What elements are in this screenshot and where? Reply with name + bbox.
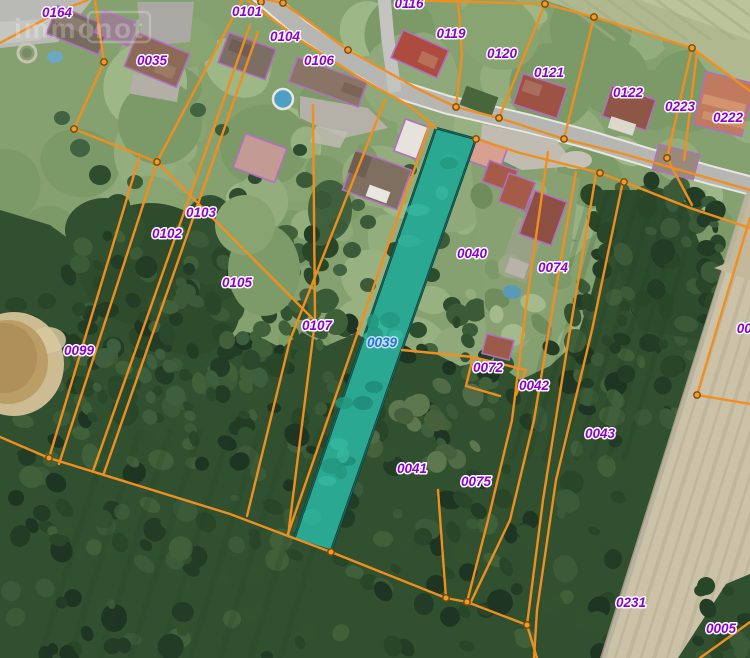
svg-text:0005: 0005 — [706, 621, 737, 636]
svg-text:0116: 0116 — [394, 0, 424, 11]
svg-text:0104: 0104 — [270, 29, 301, 44]
svg-text:0041: 0041 — [397, 461, 427, 476]
svg-text:0119: 0119 — [436, 26, 466, 41]
svg-text:0102: 0102 — [152, 226, 183, 241]
svg-text:004: 004 — [737, 321, 750, 336]
svg-text:0042: 0042 — [519, 378, 550, 393]
svg-text:0099: 0099 — [64, 343, 95, 358]
svg-text:0074: 0074 — [538, 260, 569, 275]
svg-text:0120: 0120 — [487, 46, 518, 61]
svg-text:0075: 0075 — [461, 474, 492, 489]
svg-text:0035: 0035 — [137, 53, 168, 68]
svg-text:0043: 0043 — [585, 426, 616, 441]
svg-text:0101: 0101 — [232, 4, 262, 19]
svg-text:0107: 0107 — [302, 318, 334, 333]
svg-text:0105: 0105 — [222, 275, 253, 290]
svg-text:0222: 0222 — [713, 110, 744, 125]
svg-text:0223: 0223 — [665, 99, 696, 114]
svg-text:0121: 0121 — [534, 65, 564, 80]
svg-text:not: not — [95, 13, 145, 44]
svg-text:0231: 0231 — [616, 595, 646, 610]
svg-text:0122: 0122 — [613, 85, 644, 100]
svg-text:immo: immo — [14, 13, 97, 44]
svg-text:0072: 0072 — [473, 360, 504, 375]
svg-text:0103: 0103 — [186, 205, 217, 220]
svg-text:0039: 0039 — [367, 335, 398, 350]
svg-text:0040: 0040 — [457, 246, 488, 261]
svg-text:0106: 0106 — [304, 53, 335, 68]
